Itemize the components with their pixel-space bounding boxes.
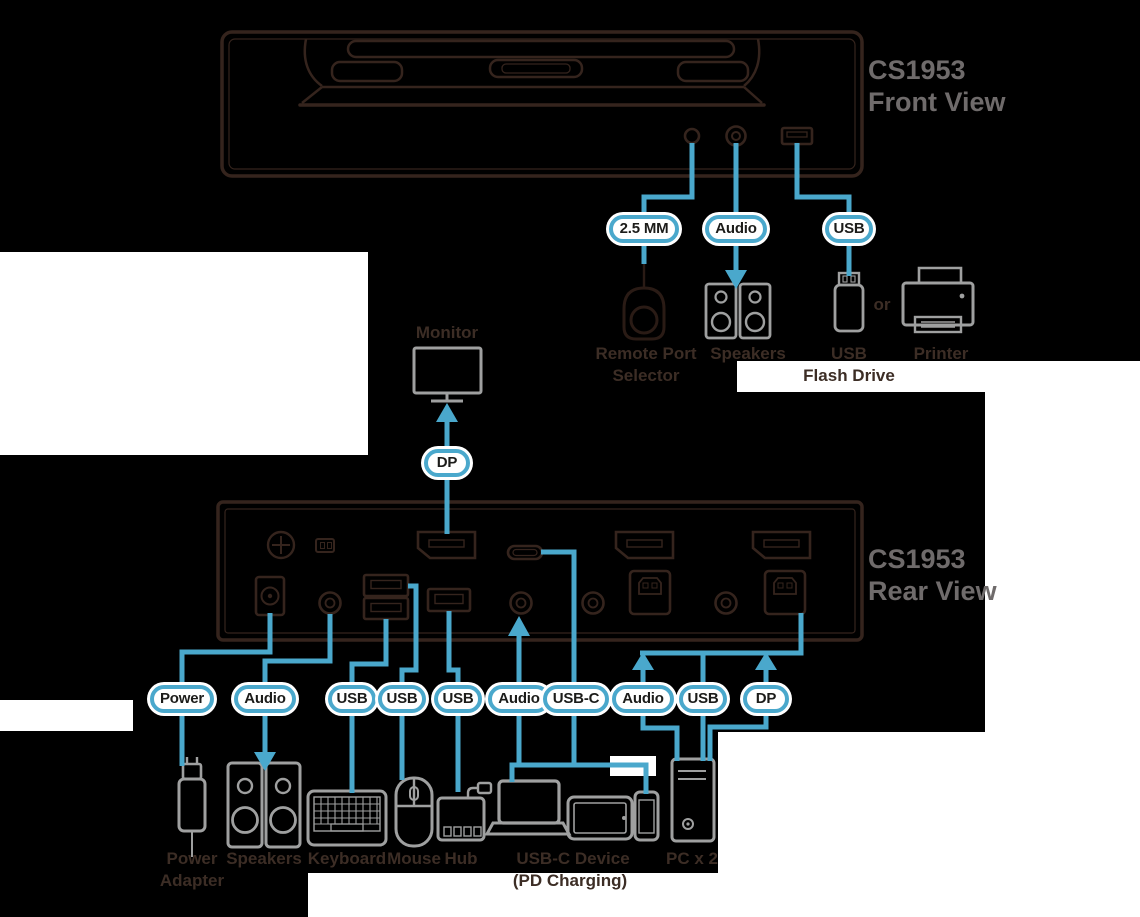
speakers-top-icon <box>706 284 770 338</box>
label-remote-port-line2: Selector <box>576 365 716 387</box>
front-view-model-title: CS1953 <box>868 54 966 86</box>
pill-usb-front: USB <box>825 215 873 243</box>
pill-audio-front: Audio <box>705 215 767 243</box>
pill-audio-rear2: Audio <box>488 685 550 713</box>
label-power-adapter-line2: Adapter <box>132 870 252 892</box>
rear-audio-jack-mic <box>511 593 532 614</box>
label-or: or <box>852 294 912 316</box>
rear-dp-in-port-1 <box>616 532 673 558</box>
rear-dp-in-port-2 <box>753 532 810 558</box>
rear-view-model-title: CS1953 <box>868 543 966 575</box>
label-monitor: Monitor <box>387 322 507 344</box>
rear-usb-a-stack <box>364 575 408 619</box>
rear-usb-b-port-2 <box>765 571 805 614</box>
keyboard-icon <box>308 791 386 845</box>
label-pc-x2: PC x 2 <box>632 848 752 870</box>
pill-usb-rear3: USB <box>434 685 482 713</box>
label-usbc-device-line1: USB-C Device <box>503 848 643 870</box>
rear-firmware-port <box>316 539 334 552</box>
speakers-bottom-icon <box>228 763 300 847</box>
power-adapter-icon <box>179 757 205 857</box>
rear-usbc-port <box>508 546 542 559</box>
arrow-down-speakers-top-icon <box>725 270 747 289</box>
pill-usb-rear4: USB <box>679 685 727 713</box>
pill-25mm: 2.5 MM <box>609 215 679 243</box>
rear-grounding-terminal <box>268 532 294 558</box>
rear-audio-jack-pc1 <box>583 593 604 614</box>
pill-usb-rear1: USB <box>328 685 376 713</box>
pill-dp-rear: DP <box>743 685 789 713</box>
phone-icon <box>635 792 658 840</box>
printer-icon <box>903 268 973 332</box>
pill-audio-rear1: Audio <box>234 685 296 713</box>
arrow-up-audio-port-icon <box>508 616 530 636</box>
front-view-title: Front View <box>868 86 1006 118</box>
rear-view-title: Rear View <box>868 575 997 607</box>
monitor-icon <box>414 348 481 401</box>
pill-power: Power <box>150 685 214 713</box>
pill-usbc: USB-C <box>543 685 609 713</box>
rear-power-jack <box>256 577 284 615</box>
hub-icon <box>438 783 491 840</box>
remote-port-selector-icon <box>624 262 664 339</box>
tablet-icon <box>568 797 632 839</box>
laptop-icon <box>487 781 569 834</box>
diagram-artwork <box>0 0 1140 917</box>
front-panel <box>222 32 862 176</box>
rear-panel <box>218 502 862 640</box>
label-usb-flash-line2: Flash Drive <box>789 365 909 387</box>
pill-usb-rear2: USB <box>378 685 426 713</box>
arrow-up-monitor-icon <box>436 403 458 422</box>
installation-diagram: CS1953 Front View CS1953 Rear View Monit… <box>0 0 1140 917</box>
rear-audio-jack-console <box>320 593 341 614</box>
pill-dp-monitor: DP <box>424 449 470 477</box>
label-usbc-device-line2: (PD Charging) <box>500 870 640 892</box>
rear-usb-a-hub-port <box>428 589 470 611</box>
front-audio-port <box>727 127 746 146</box>
mouse-icon <box>396 778 432 846</box>
front-usb-port <box>782 128 812 144</box>
rear-dp-out-port <box>418 532 475 558</box>
pc-tower-icon <box>672 759 714 841</box>
label-printer: Printer <box>881 343 1001 365</box>
rear-audio-jack-pc2 <box>716 593 737 614</box>
rear-usb-b-port-1 <box>630 571 670 614</box>
pill-audio-rear3: Audio <box>612 685 674 713</box>
front-remote-port <box>685 129 699 143</box>
